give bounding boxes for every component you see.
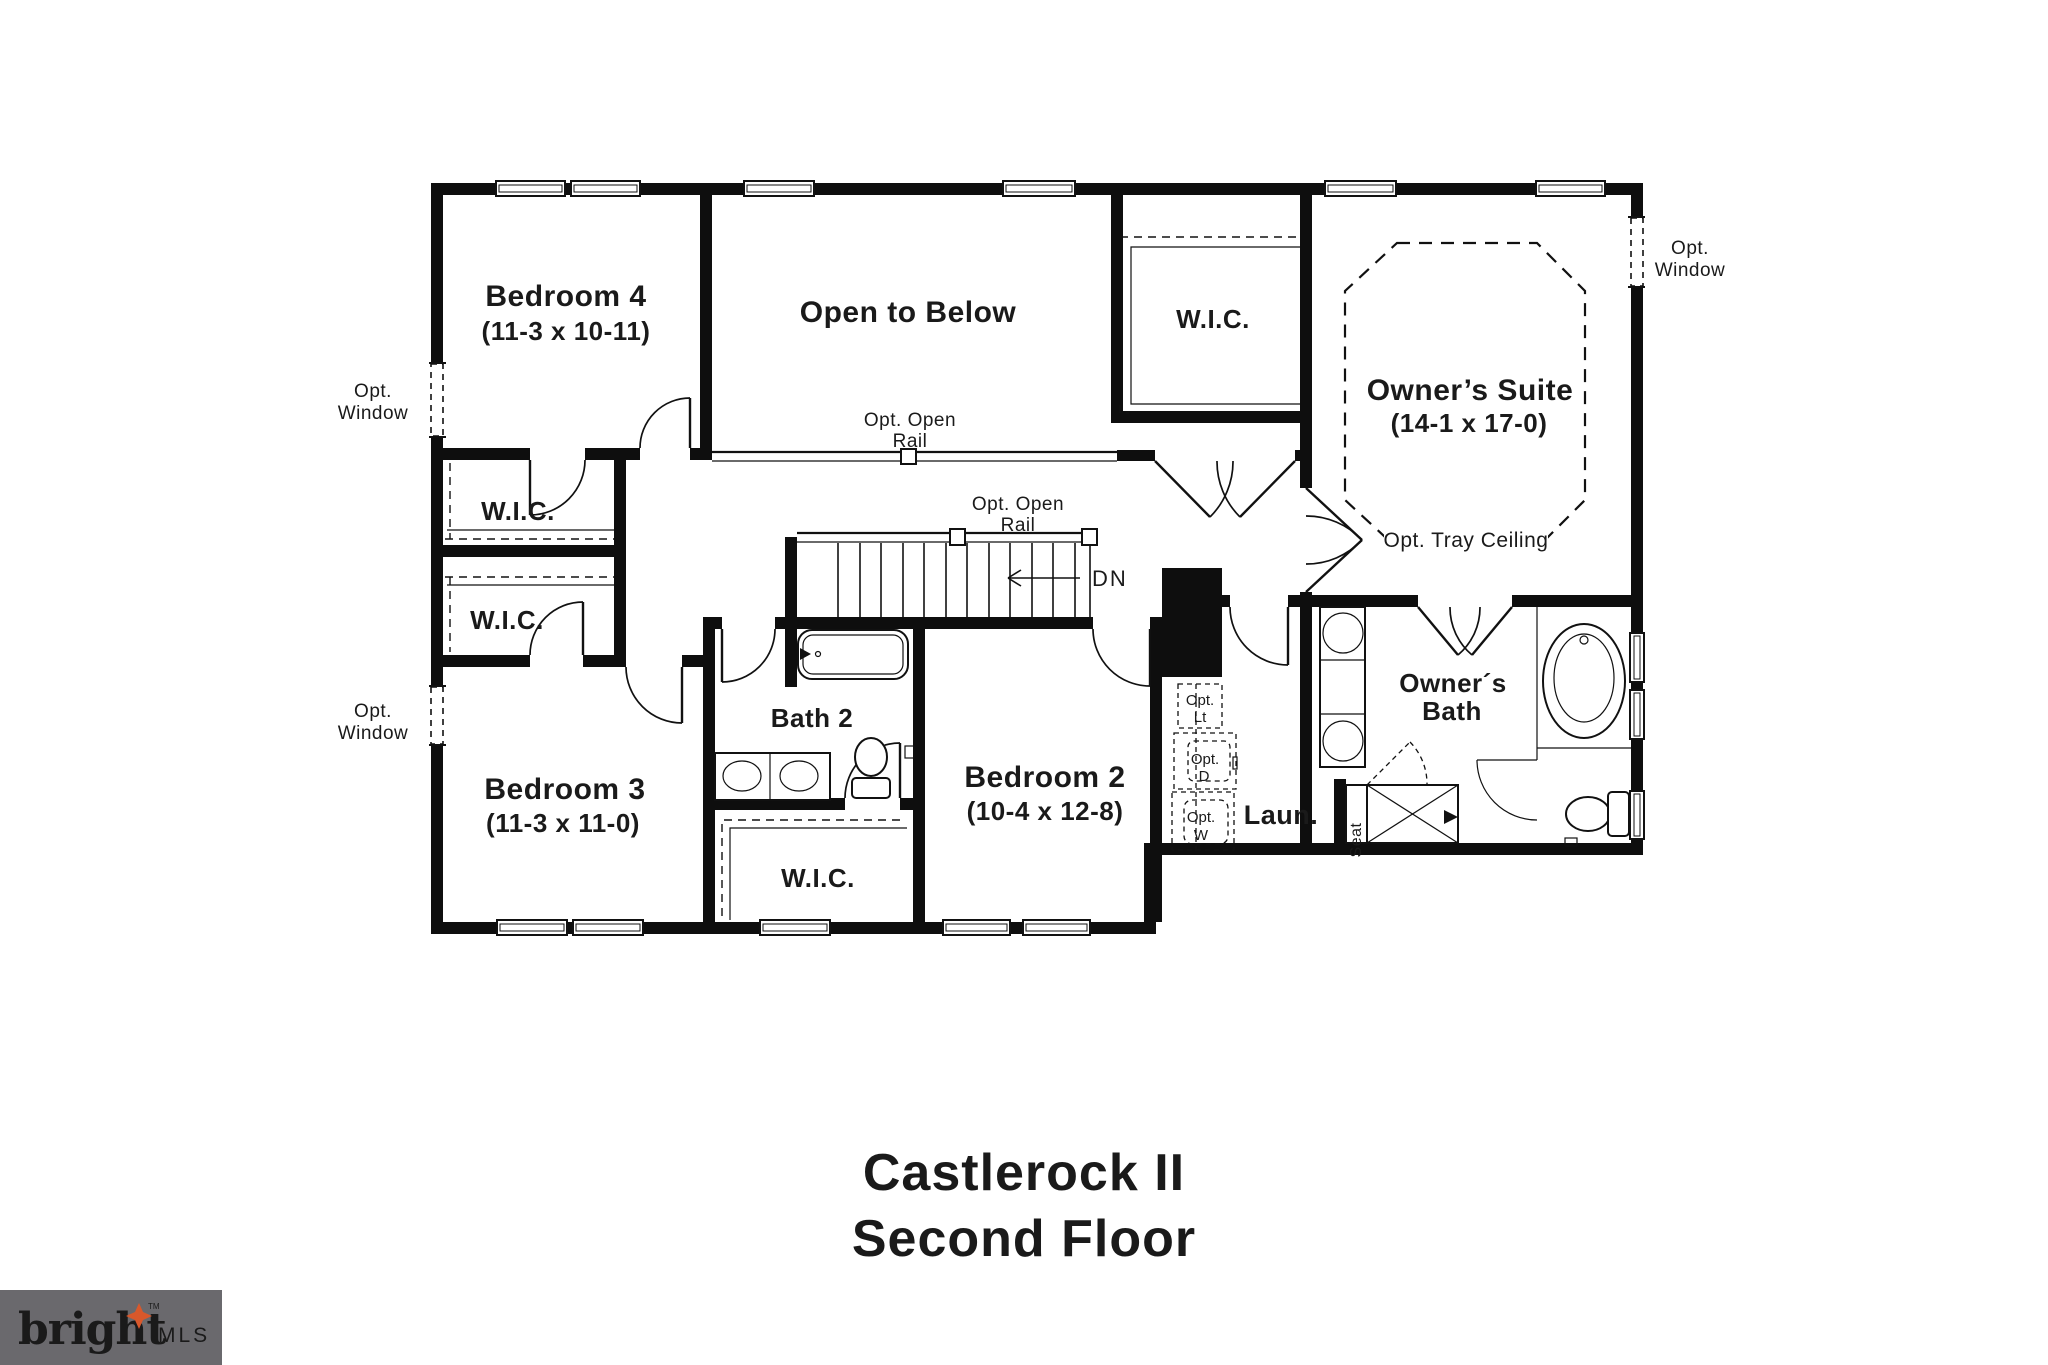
bedroom2-label: Bedroom 2: [964, 761, 1125, 794]
opt-d-line1: Opt.: [1191, 751, 1219, 768]
owners-bath-fixtures: [1320, 607, 1631, 846]
opt-w-line1: Opt.: [1187, 809, 1215, 826]
owners-suite-label: Owner’s Suite: [1367, 374, 1574, 407]
wic-bottom-label: W.I.C.: [781, 863, 855, 893]
owners-suite-dims: (14-1 x 17-0): [1391, 408, 1548, 438]
laundry-label: Laun.: [1244, 800, 1319, 830]
opt-lt-line2: Lt: [1194, 709, 1207, 726]
logo-brand-text: bright: [18, 1304, 167, 1355]
wic-left-lower-label: W.I.C.: [470, 605, 544, 635]
floor-plan: Bedroom 4 (11-3 x 10-11) Open to Below W…: [0, 0, 2048, 1365]
bedroom4-dims: (11-3 x 10-11): [482, 316, 651, 346]
bright-mls-logo: bright TM MLS: [0, 1290, 222, 1365]
opt-open-rail1-line1: Opt. Open: [864, 410, 956, 431]
floor-plan-page: Bedroom 4 (11-3 x 10-11) Open to Below W…: [0, 0, 2048, 1365]
logo-mls-text: MLS: [158, 1324, 210, 1347]
bedroom3-dims: (11-3 x 11-0): [486, 808, 640, 838]
dn-arrow: [1008, 570, 1080, 586]
opt-open-rail1-line2: Rail: [893, 431, 928, 452]
opt-window-left2-line2: Window: [338, 723, 409, 744]
open-to-below-label: Open to Below: [800, 296, 1017, 329]
owners-bath-line1: Owner´s: [1399, 668, 1507, 698]
seat-label: Seat: [1348, 822, 1365, 857]
stairs: [838, 543, 1090, 617]
opt-lt-line1: Opt.: [1186, 692, 1214, 709]
bath2-label: Bath 2: [771, 703, 853, 733]
opt-window-right-line2: Window: [1655, 260, 1726, 281]
opt-window-left1-line1: Opt.: [354, 381, 392, 402]
wic-top-label: W.I.C.: [1176, 304, 1250, 334]
opt-window-left2-line1: Opt.: [354, 701, 392, 722]
bedroom4-label: Bedroom 4: [485, 280, 646, 313]
plan-title-line2: Second Floor: [852, 1210, 1196, 1268]
stair-rail: [797, 529, 1098, 545]
logo-tm: TM: [148, 1302, 160, 1311]
opt-window-left1-line2: Window: [338, 403, 409, 424]
opt-d-line2: D: [1199, 768, 1210, 785]
dn-label: DN: [1092, 566, 1128, 591]
bedroom2-dims: (10-4 x 12-8): [967, 796, 1124, 826]
tray-ceiling-label: Opt. Tray Ceiling: [1384, 529, 1549, 552]
owners-bath-line2: Bath: [1422, 696, 1482, 726]
plan-title-line1: Castlerock II: [863, 1144, 1185, 1202]
opt-w-line2: W: [1194, 827, 1209, 844]
opt-open-rail2-line1: Opt. Open: [972, 494, 1064, 515]
opt-window-right-line1: Opt.: [1671, 238, 1709, 259]
opt-open-rail2-line2: Rail: [1001, 515, 1036, 536]
bedroom3-label: Bedroom 3: [484, 773, 645, 806]
wic-left-upper-label: W.I.C.: [481, 496, 555, 526]
